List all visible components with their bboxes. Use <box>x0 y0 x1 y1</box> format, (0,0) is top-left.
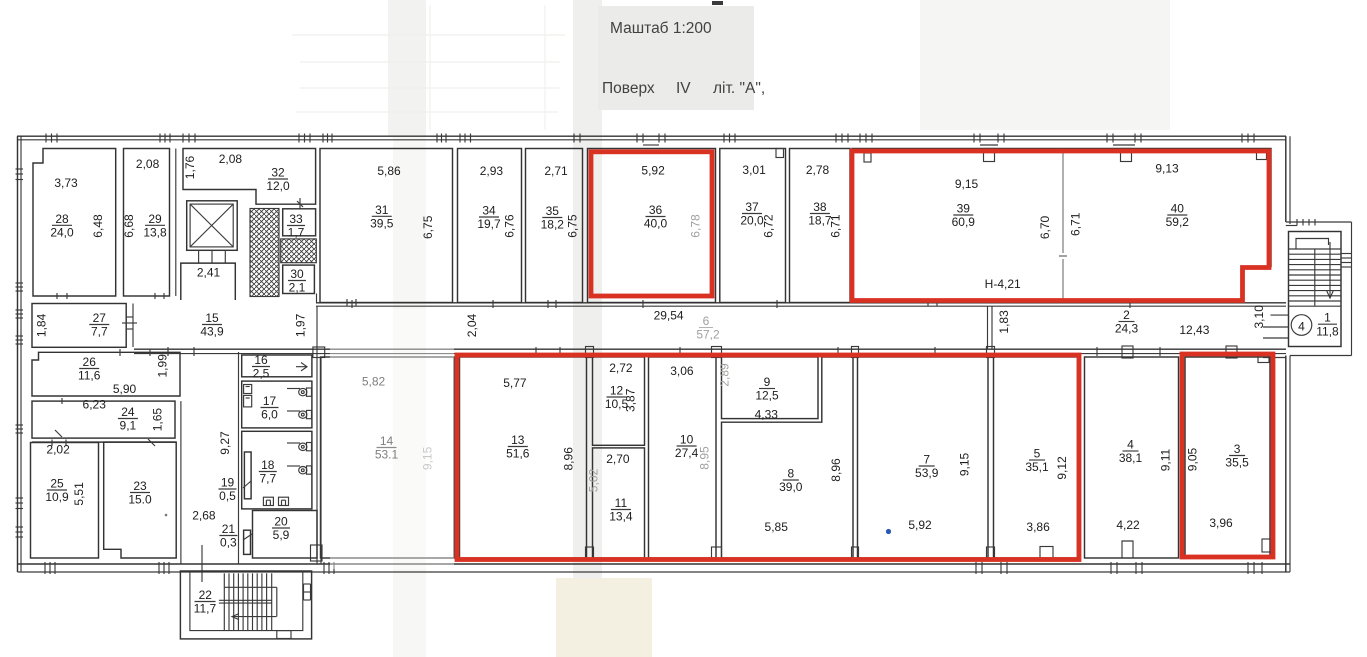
svg-text:7,7: 7,7 <box>91 325 108 339</box>
svg-text:1: 1 <box>1324 311 1331 325</box>
svg-text:2,04: 2,04 <box>465 313 479 337</box>
svg-text:38: 38 <box>813 200 827 214</box>
svg-text:5,02: 5,02 <box>587 468 601 492</box>
svg-text:43,9: 43,9 <box>200 325 224 339</box>
svg-text:3,86: 3,86 <box>1026 520 1050 534</box>
svg-text:9,27: 9,27 <box>218 431 232 455</box>
svg-text:33: 33 <box>289 212 303 226</box>
svg-text:12: 12 <box>610 384 624 398</box>
svg-text:3,06: 3,06 <box>670 364 694 378</box>
svg-text:40: 40 <box>1171 202 1185 216</box>
svg-text:26: 26 <box>83 355 97 369</box>
svg-text:3,87: 3,87 <box>623 388 637 412</box>
svg-text:24: 24 <box>121 405 135 419</box>
svg-text:5,9: 5,9 <box>273 528 290 542</box>
svg-text:2,78: 2,78 <box>806 163 830 177</box>
svg-text:21: 21 <box>222 522 236 536</box>
svg-text:4: 4 <box>1298 320 1305 334</box>
svg-text:10: 10 <box>680 433 694 447</box>
svg-text:1,65: 1,65 <box>151 408 165 432</box>
svg-text:9,12: 9,12 <box>1055 456 1069 480</box>
svg-text:19: 19 <box>221 476 235 490</box>
svg-text:2: 2 <box>1123 308 1130 322</box>
svg-text:36: 36 <box>649 203 663 217</box>
svg-text:2,70: 2,70 <box>606 452 630 466</box>
svg-text:39,5: 39,5 <box>370 216 394 230</box>
svg-text:12,5: 12,5 <box>755 389 779 403</box>
svg-text:6: 6 <box>703 314 710 328</box>
svg-text:57,2: 57,2 <box>696 328 720 342</box>
svg-text:18: 18 <box>261 458 275 472</box>
svg-text:2,41: 2,41 <box>197 266 221 280</box>
svg-text:20: 20 <box>274 515 288 529</box>
svg-text:9,05: 9,05 <box>1186 447 1200 471</box>
svg-text:1,99: 1,99 <box>156 354 170 378</box>
svg-text:8: 8 <box>787 467 794 481</box>
svg-text:6,72: 6,72 <box>761 214 775 238</box>
svg-text:11: 11 <box>615 496 628 510</box>
svg-text:59,2: 59,2 <box>1166 215 1190 229</box>
svg-text:34: 34 <box>482 204 496 218</box>
svg-text:2,08: 2,08 <box>219 152 243 166</box>
svg-text:9,13: 9,13 <box>1155 162 1179 176</box>
svg-text:13: 13 <box>511 433 525 447</box>
svg-text:17: 17 <box>263 394 277 408</box>
svg-text:0,5: 0,5 <box>219 489 236 503</box>
svg-text:35,1: 35,1 <box>1025 460 1049 474</box>
svg-text:35: 35 <box>546 204 560 218</box>
svg-text:2,72: 2,72 <box>609 361 633 375</box>
svg-text:6,75: 6,75 <box>566 214 580 238</box>
svg-text:24,0: 24,0 <box>50 225 74 239</box>
svg-text:13,8: 13,8 <box>143 225 167 239</box>
svg-text:1,83: 1,83 <box>997 310 1011 334</box>
svg-text:6,75: 6,75 <box>421 215 435 239</box>
svg-text:7,7: 7,7 <box>259 472 276 486</box>
svg-text:6,0: 6,0 <box>261 408 278 422</box>
svg-text:Н-4,21: Н-4,21 <box>985 277 1021 291</box>
svg-text:31: 31 <box>375 203 389 217</box>
svg-text:13,4: 13,4 <box>609 510 633 524</box>
svg-text:0,3: 0,3 <box>220 536 237 550</box>
svg-text:3,01: 3,01 <box>742 163 766 177</box>
svg-text:11,6: 11,6 <box>78 369 101 383</box>
svg-text:12,0: 12,0 <box>266 179 290 193</box>
svg-text:37: 37 <box>745 200 759 214</box>
svg-text:18,2: 18,2 <box>541 218 565 232</box>
svg-text:5: 5 <box>1034 447 1041 461</box>
svg-text:4,22: 4,22 <box>1116 518 1140 532</box>
svg-text:2,02: 2,02 <box>46 443 70 457</box>
svg-text:35,5: 35,5 <box>1225 456 1249 470</box>
svg-text:12,43: 12,43 <box>1179 323 1209 337</box>
svg-text:4: 4 <box>1127 438 1134 452</box>
svg-text:6,68: 6,68 <box>122 214 136 238</box>
svg-text:6,76: 6,76 <box>502 214 516 238</box>
svg-text:9,11: 9,11 <box>1159 448 1173 471</box>
svg-text:9: 9 <box>764 375 771 389</box>
svg-text:5,90: 5,90 <box>113 382 137 396</box>
svg-text:Маштаб 1:200: Маштаб 1:200 <box>610 20 712 37</box>
svg-text:5,77: 5,77 <box>503 376 527 390</box>
svg-text:51,6: 51,6 <box>506 447 530 461</box>
svg-text:25: 25 <box>50 477 64 491</box>
svg-text:40,0: 40,0 <box>644 217 668 231</box>
svg-text:1,97: 1,97 <box>294 313 308 337</box>
svg-text:23: 23 <box>133 479 147 493</box>
svg-text:27: 27 <box>93 311 107 325</box>
svg-text:15: 15 <box>205 311 219 325</box>
svg-text:9,1: 9,1 <box>120 419 137 433</box>
svg-text:2,08: 2,08 <box>136 157 160 171</box>
svg-text:5,85: 5,85 <box>765 520 789 534</box>
svg-text:5,92: 5,92 <box>641 164 665 178</box>
svg-text:3,96: 3,96 <box>1209 516 1233 530</box>
svg-text:29,54: 29,54 <box>654 309 684 323</box>
svg-text:2,71: 2,71 <box>544 164 568 178</box>
svg-text:5,92: 5,92 <box>908 518 932 532</box>
svg-text:1,84: 1,84 <box>34 313 48 337</box>
svg-text:9,15: 9,15 <box>958 452 972 476</box>
svg-text:19,7: 19,7 <box>477 217 501 231</box>
svg-text:32: 32 <box>271 166 285 180</box>
svg-text:5,86: 5,86 <box>377 164 401 178</box>
svg-text:3,73: 3,73 <box>54 176 78 190</box>
svg-text:3,10: 3,10 <box>1252 305 1266 329</box>
svg-text:10,9: 10,9 <box>45 490 69 504</box>
svg-text:6,71: 6,71 <box>1069 212 1083 236</box>
svg-text:2,89: 2,89 <box>718 363 732 387</box>
svg-text:6,78: 6,78 <box>689 214 703 238</box>
svg-text:27,4: 27,4 <box>675 446 699 460</box>
svg-text:2,1: 2,1 <box>289 281 306 295</box>
svg-text:15.0: 15.0 <box>128 493 152 507</box>
svg-text:6,70: 6,70 <box>1038 215 1052 239</box>
svg-text:1,76: 1,76 <box>183 155 197 179</box>
svg-text:2,5: 2,5 <box>253 367 270 381</box>
svg-text:28: 28 <box>55 212 69 226</box>
svg-text:8,96: 8,96 <box>561 447 575 471</box>
svg-text:30: 30 <box>290 267 304 281</box>
svg-text:16: 16 <box>254 353 268 367</box>
svg-text:38,1: 38,1 <box>1119 451 1143 465</box>
svg-text:5,51: 5,51 <box>72 482 86 506</box>
svg-text:53,9: 53,9 <box>915 466 939 480</box>
svg-text:8,95: 8,95 <box>698 446 712 470</box>
svg-text:22: 22 <box>199 588 213 602</box>
svg-text:ПоверхIVліт. "А",: ПоверхIVліт. "А", <box>602 80 765 97</box>
svg-text:3: 3 <box>1234 442 1241 456</box>
svg-text:9,15: 9,15 <box>955 177 979 191</box>
svg-text:11,7: 11,7 <box>194 602 217 616</box>
svg-text:7: 7 <box>923 453 930 467</box>
svg-text:24,3: 24,3 <box>1115 322 1139 336</box>
svg-text:2,68: 2,68 <box>192 509 216 523</box>
svg-text:39: 39 <box>957 202 971 216</box>
svg-text:29: 29 <box>148 212 162 226</box>
svg-text:39,0: 39,0 <box>779 480 803 494</box>
svg-text:6,48: 6,48 <box>91 214 105 238</box>
svg-text:60,9: 60,9 <box>952 215 976 229</box>
svg-text:11,8: 11,8 <box>1316 324 1339 338</box>
svg-text:2,93: 2,93 <box>480 164 504 178</box>
svg-text:1,7: 1,7 <box>288 226 305 240</box>
svg-text:8,96: 8,96 <box>829 458 843 482</box>
svg-text:6,71: 6,71 <box>828 214 842 238</box>
svg-text:6,23: 6,23 <box>83 398 107 412</box>
svg-text:4,33: 4,33 <box>755 408 779 422</box>
